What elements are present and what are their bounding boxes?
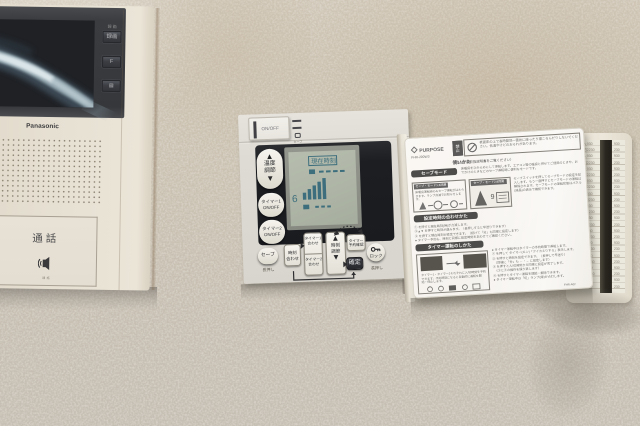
svg-text:現在時刻: 現在時刻 [311, 157, 336, 166]
svg-text:6: 6 [292, 194, 298, 205]
